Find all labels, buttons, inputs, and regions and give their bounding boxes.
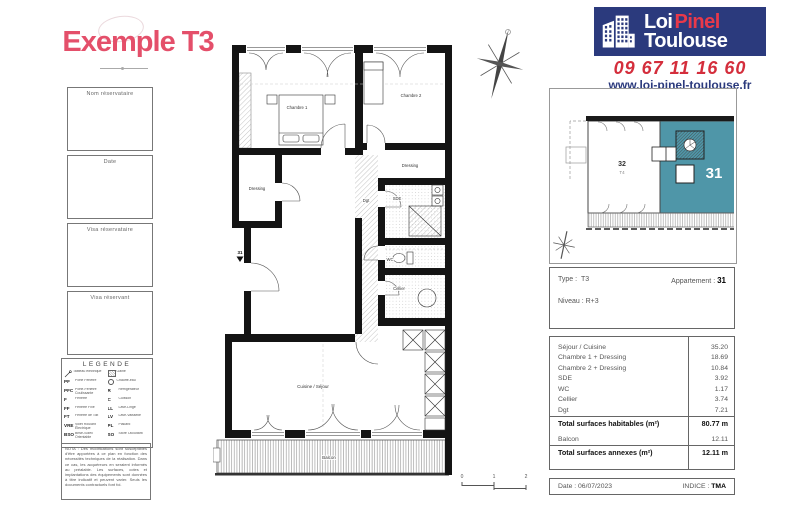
room-label-balcon: Balcon	[322, 455, 336, 460]
building-icon	[601, 12, 639, 52]
room-label-dressing2: Dressing	[402, 163, 419, 168]
unit-31-label: 31	[706, 165, 723, 182]
gaine-hatch-icon	[108, 370, 117, 377]
page-title: Exemple T3	[56, 26, 220, 59]
plan-sheet: Exemple T3 Nom réservataire Date Visa ré…	[0, 0, 800, 529]
chauffe-eau-icon	[108, 379, 117, 386]
legend-abbr: LV	[108, 414, 119, 419]
windows-bottom	[251, 430, 423, 438]
unit-31-entry	[652, 147, 676, 161]
balcony-edge	[215, 473, 449, 476]
nightstand	[325, 95, 335, 104]
kitchen-counter	[425, 418, 445, 430]
site-plan-box: 32 T4 31	[549, 88, 737, 264]
windows-top	[246, 45, 427, 53]
washbasin	[432, 185, 443, 195]
type-label: Type :	[558, 276, 577, 283]
legend-title: LEGENDE	[62, 361, 152, 368]
legend-abbr: C	[108, 397, 119, 402]
box-label: Nom réservataire	[68, 91, 152, 97]
room-label-dgt: Dgt	[363, 198, 370, 203]
legend-abbr: FF	[64, 406, 75, 411]
legend-abbr: F	[64, 397, 75, 402]
type-value: T3	[581, 276, 589, 283]
unit-entrance-number: 31	[237, 250, 243, 255]
table-row: Chambre 2 + Dressing10.84	[550, 363, 734, 374]
mini-compass-icon	[550, 229, 577, 261]
box-visa-reservant: Visa réservant	[67, 291, 153, 355]
table-row: Chambre 1 + Dressing18.69	[550, 353, 734, 364]
legend-desc: Cuisson	[119, 397, 132, 401]
room-label-chambre1: Chambre 1	[287, 105, 308, 110]
legend-abbr: SO	[108, 432, 119, 437]
phone-number: 09 67 11 16 60	[594, 58, 766, 79]
corridor-living-door	[356, 342, 378, 364]
table-row: Balcon12.11	[550, 435, 734, 446]
legend-desc: Lave-Linge	[119, 406, 136, 410]
legend-abbr: PFC	[64, 388, 75, 393]
date-label: Date :	[558, 483, 576, 490]
box-label: Visa réservataire	[68, 227, 152, 233]
legend-desc: Brise-Soleil Orientable	[75, 432, 108, 440]
nota-disclaimer: NOTA : Des modifications sont susceptibl…	[61, 443, 151, 500]
table-row: WC1.17	[550, 384, 734, 395]
room-label-cellier: Cellier	[393, 286, 405, 291]
apartment-label: Appartement :	[671, 278, 715, 285]
legend-desc: Gaine	[117, 370, 126, 374]
unit-info-box: Type : T3 Appartement : 31 Niveau : R+3	[549, 267, 735, 329]
apartment-value: 31	[717, 276, 726, 285]
floor-plan: 31 Chambre 1 Chambre 2 Dressing Dressing…	[213, 38, 463, 483]
table-row: Cellier3.74	[550, 395, 734, 406]
box-label: Date	[68, 159, 152, 165]
washbasin	[432, 196, 443, 206]
areas-table: Séjour / Cuisine35.20 Chambre 1 + Dressi…	[549, 336, 735, 470]
legend-desc: Porte-Fenêtre Coulissante	[75, 388, 108, 396]
chambre1-door	[321, 124, 345, 148]
legend-abbr: LL	[108, 406, 119, 411]
room-label-sde: SDE	[393, 196, 402, 201]
compass-icon	[468, 26, 532, 102]
legend-desc: Réfrigérateur	[119, 388, 139, 392]
box-visa-reservataire: Visa réservataire	[67, 223, 153, 287]
legend-left-column: Tableau électrique PFPorte Fenêtre PFCPo…	[64, 370, 108, 441]
balcony-step	[213, 448, 220, 462]
site-balcony-strip	[588, 213, 734, 227]
pillow	[283, 135, 299, 142]
legend-abbr: PL	[108, 423, 119, 428]
room-label-wc: WC	[387, 257, 394, 262]
legend-desc: Volet Roulant Électrique	[75, 423, 108, 431]
table-row: SDE3.92	[550, 374, 734, 385]
total-habitable-row: Total surfaces habitables (m²)80.77 m	[550, 416, 734, 430]
scale-1: 1	[493, 474, 496, 480]
adjacent-balcony	[566, 147, 586, 163]
total-annex-row: Total surfaces annexes (m²)12.11 m	[550, 445, 734, 459]
legend-abbr: FT	[64, 414, 75, 419]
logo-word-toulouse: Toulouse	[644, 32, 727, 51]
legend-abbr: BSO	[64, 432, 75, 437]
box-nom-reservataire: Nom réservataire	[67, 87, 153, 151]
title-flourish	[100, 68, 148, 69]
logo: LoiPinel Toulouse	[594, 7, 766, 56]
legend-right-column: Gaine Chauffe-eau RRéfrigérateur CCuisso…	[108, 370, 152, 441]
nightstand	[267, 95, 277, 104]
chambre2-door	[367, 125, 385, 143]
table-row: Dgt7.21	[550, 405, 734, 416]
site-key-plan: 32 T4 31	[550, 89, 734, 261]
pillow	[364, 62, 383, 70]
room-label-dressing1: Dressing	[249, 186, 266, 191]
legend-abbr: VRE	[64, 423, 75, 428]
legend-desc: Chauffe-eau	[117, 379, 136, 383]
indice-value: TMA	[711, 483, 726, 490]
adjacent-building-dashes	[570, 121, 586, 181]
legend-desc: Placard	[119, 423, 131, 427]
site-top-wall	[586, 116, 734, 121]
legend-desc: Lave-Vaisselle	[119, 414, 142, 418]
box-label: Visa réservant	[68, 295, 152, 301]
legend-desc: Porte Fenêtre	[75, 379, 96, 383]
legend-desc: Store Occultant	[119, 432, 143, 436]
legend-abbr: R	[108, 388, 119, 393]
scale-2: 2	[525, 474, 528, 480]
entrance-door	[251, 263, 279, 291]
legend-desc: Tableau électrique	[73, 370, 101, 374]
legend-desc: Fenêtre Fixe	[75, 406, 95, 410]
legend: LEGENDE Tableau électrique PFPorte Fenêt…	[61, 358, 153, 448]
scale-bar: 0 1 2	[454, 470, 538, 498]
entrance-arrow-icon	[237, 257, 244, 263]
scale-0: 0	[461, 474, 464, 480]
unit-32-label: 32	[618, 161, 626, 168]
legend-desc: Fenêtre	[75, 397, 87, 401]
level-label: Niveau : R+3	[558, 298, 726, 305]
electric-switch-icon	[64, 370, 73, 378]
legend-desc: Fenêtre de Toit	[75, 414, 98, 418]
dressing1-door	[282, 183, 300, 201]
room-label-chambre2: Chambre 2	[401, 93, 422, 98]
footer-bar: Date : 06/07/2023 INDICE : TMA	[549, 478, 735, 495]
toilet	[393, 254, 405, 263]
indice-label: INDICE :	[683, 483, 710, 490]
unit-32-type: T4	[619, 170, 625, 175]
stair-landing	[676, 165, 694, 183]
toilet-tank	[407, 252, 413, 264]
legend-abbr: PF	[64, 379, 75, 384]
date-value: 06/07/2023	[578, 483, 612, 490]
box-date: Date	[67, 155, 153, 219]
table-row: Séjour / Cuisine35.20	[550, 342, 734, 353]
logo-text: LoiPinel Toulouse	[644, 13, 727, 51]
room-label-sejour: Cuisine / Séjour	[297, 384, 329, 389]
pillow	[303, 135, 319, 142]
